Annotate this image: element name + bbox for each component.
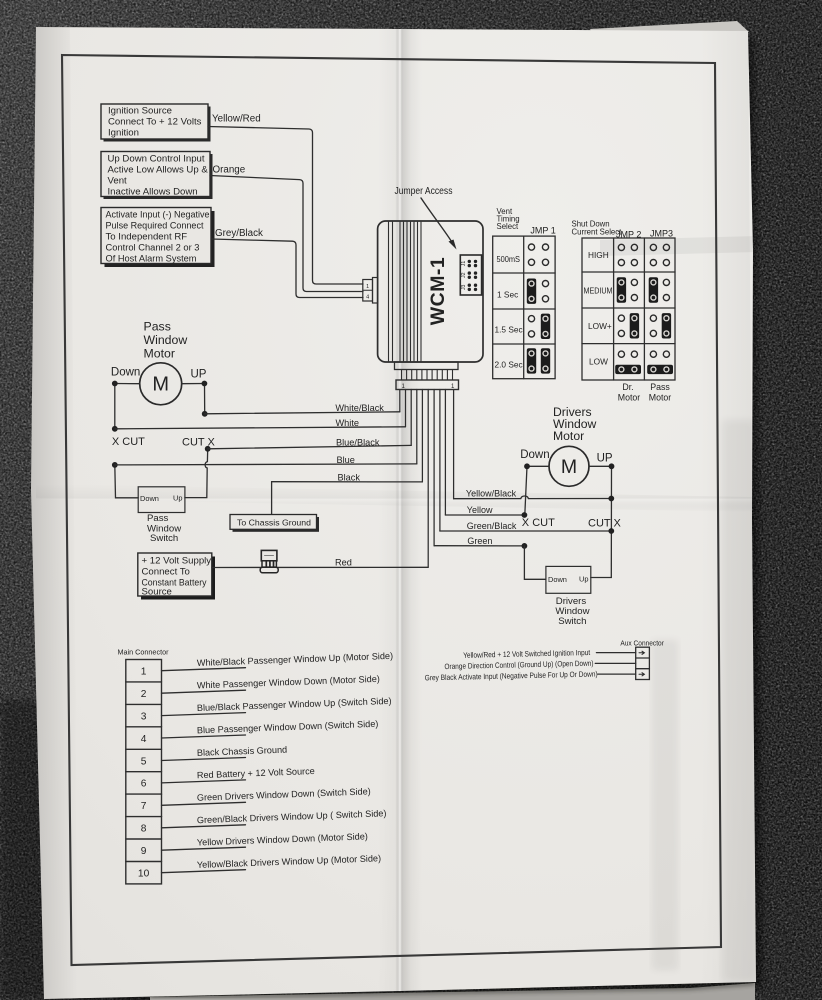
svg-text:Yellow/Black: Yellow/Black <box>466 489 517 499</box>
svg-text:Vent: Vent <box>108 176 128 187</box>
svg-text:WCM-1: WCM-1 <box>427 257 449 326</box>
svg-text:3: 3 <box>141 711 147 722</box>
svg-text:Main Connector: Main Connector <box>118 648 169 657</box>
svg-text:Dr.: Dr. <box>622 382 633 392</box>
svg-text:5: 5 <box>141 756 147 767</box>
svg-text:Yellow: Yellow <box>467 505 493 515</box>
svg-text:2: 2 <box>141 689 147 700</box>
svg-text:Current Select: Current Select <box>572 228 623 237</box>
svg-text:Select: Select <box>497 222 520 231</box>
svg-text:Green/Black: Green/Black <box>467 521 517 531</box>
svg-text:Black: Black <box>338 472 361 482</box>
svg-text:Blue: Blue <box>337 455 355 465</box>
svg-text:10: 10 <box>138 869 150 880</box>
svg-text:J3: J3 <box>461 284 467 290</box>
svg-text:Up: Up <box>579 575 588 584</box>
svg-text:To Independent RF: To Independent RF <box>106 232 188 243</box>
svg-text:Connect To + 12 Volts: Connect To + 12 Volts <box>108 117 202 128</box>
svg-text:Down: Down <box>548 575 567 584</box>
svg-text:Pass: Pass <box>144 320 171 334</box>
svg-text:Pass: Pass <box>650 382 670 392</box>
svg-text:Ignition: Ignition <box>108 128 139 139</box>
svg-text:4: 4 <box>141 734 147 745</box>
svg-text:4: 4 <box>366 295 369 301</box>
svg-text:Motor: Motor <box>553 429 584 443</box>
svg-text:JMP 1: JMP 1 <box>530 226 555 236</box>
svg-text:M: M <box>561 456 577 478</box>
svg-text:Yellow/Red: Yellow/Red <box>212 114 261 125</box>
svg-text:X CUT: X CUT <box>522 517 555 529</box>
svg-text:Aux Connector: Aux Connector <box>620 639 664 648</box>
svg-text:Up: Up <box>173 494 182 503</box>
svg-text:500mS: 500mS <box>497 254 521 264</box>
svg-text:Down: Down <box>111 366 140 378</box>
svg-text:Active Low Allows Up &: Active Low Allows Up & <box>108 165 209 176</box>
svg-text:Of Host Alarm System: Of Host Alarm System <box>106 254 197 265</box>
svg-text:MEDIUM: MEDIUM <box>584 286 613 296</box>
svg-text:Up Down Control Input: Up Down Control Input <box>108 154 205 165</box>
svg-text:M: M <box>152 374 169 396</box>
svg-text:CUT X: CUT X <box>588 518 621 530</box>
svg-text:Red: Red <box>335 557 352 567</box>
svg-text:Pulse Required Connect: Pulse Required Connect <box>106 221 204 232</box>
svg-text:Switch: Switch <box>150 533 178 544</box>
svg-text:Jumper Access: Jumper Access <box>395 186 453 197</box>
svg-text:J1: J1 <box>461 261 467 267</box>
svg-text:Inactive Allows Down: Inactive Allows Down <box>108 187 198 198</box>
svg-text:1 Sec: 1 Sec <box>497 290 518 300</box>
svg-text:Connect To: Connect To <box>142 567 190 578</box>
svg-text:Orange: Orange <box>213 165 246 176</box>
svg-text:1: 1 <box>141 667 147 678</box>
svg-text:Down: Down <box>520 449 549 461</box>
svg-text:1.5 Sec: 1.5 Sec <box>495 325 523 335</box>
svg-text:LOW: LOW <box>589 357 608 367</box>
svg-text:8: 8 <box>141 824 147 835</box>
svg-text:Motor: Motor <box>649 392 672 402</box>
svg-text:White/Black: White/Black <box>335 403 384 413</box>
svg-text:Window: Window <box>144 333 188 347</box>
svg-text:Grey/Black: Grey/Black <box>215 228 263 239</box>
svg-text:Blue/Black: Blue/Black <box>336 438 380 448</box>
svg-text:White: White <box>336 418 360 428</box>
svg-text:6: 6 <box>141 779 147 790</box>
svg-text:Green: Green <box>467 536 492 546</box>
svg-text:Switch: Switch <box>558 616 586 627</box>
svg-text:Motor: Motor <box>144 346 175 360</box>
svg-text:2.0 Sec: 2.0 Sec <box>495 360 523 370</box>
svg-text:Source: Source <box>142 587 172 598</box>
svg-text:Down: Down <box>140 494 159 503</box>
svg-text:9: 9 <box>141 846 147 857</box>
svg-text:HIGH: HIGH <box>588 250 609 260</box>
svg-text:To Chassis Ground: To Chassis Ground <box>237 517 311 527</box>
svg-text:7: 7 <box>141 801 147 812</box>
svg-text:LOW+: LOW+ <box>588 321 612 331</box>
svg-text:CUT X: CUT X <box>182 436 215 448</box>
svg-text:Control Channel 2 or 3: Control Channel 2 or 3 <box>106 243 200 254</box>
svg-text:UP: UP <box>191 369 207 381</box>
svg-text:Activate Input (-) Negative: Activate Input (-) Negative <box>106 210 210 221</box>
svg-text:+ 12 Volt Supply: + 12 Volt Supply <box>142 556 212 567</box>
svg-text:Motor: Motor <box>618 392 641 402</box>
svg-text:Ignition Source: Ignition Source <box>108 106 172 117</box>
svg-text:1: 1 <box>366 284 369 290</box>
svg-text:JMP3: JMP3 <box>650 229 673 239</box>
svg-text:X CUT: X CUT <box>112 436 145 448</box>
svg-text:UP: UP <box>597 452 613 464</box>
svg-text:J2: J2 <box>461 272 467 278</box>
